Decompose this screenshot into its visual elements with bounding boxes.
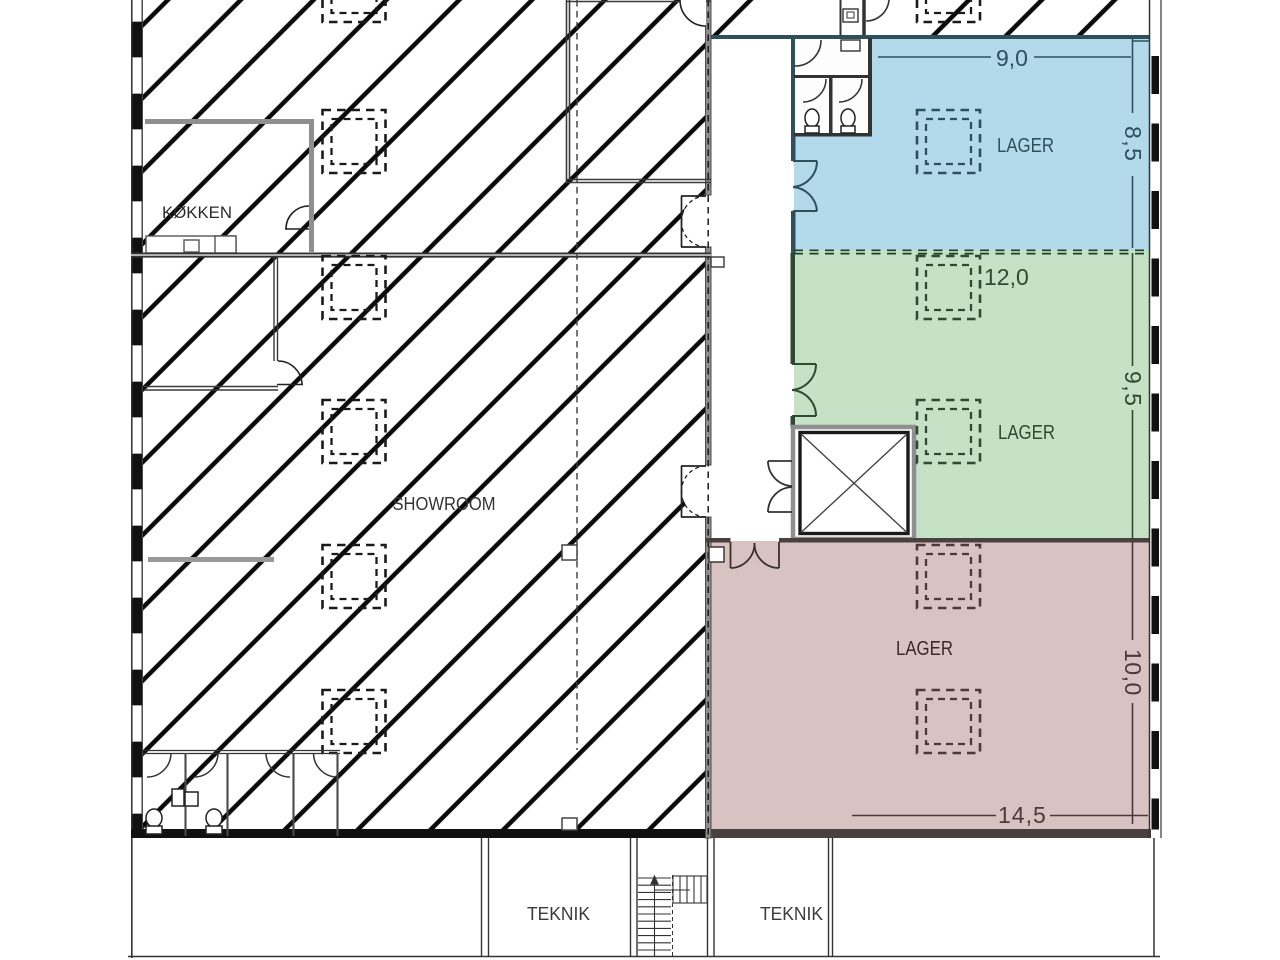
- svg-text:9,0: 9,0: [996, 45, 1028, 71]
- svg-text:LAGER: LAGER: [997, 135, 1054, 157]
- svg-text:12,0: 12,0: [984, 264, 1029, 290]
- svg-text:14,5: 14,5: [998, 802, 1047, 828]
- svg-text:KØKKEN: KØKKEN: [162, 203, 232, 222]
- svg-text:TEKNIK: TEKNIK: [527, 904, 590, 924]
- svg-text:LAGER: LAGER: [998, 422, 1055, 444]
- svg-text:9,5: 9,5: [1120, 371, 1146, 407]
- svg-text:TEKNIK: TEKNIK: [760, 904, 823, 924]
- svg-text:LAGER: LAGER: [896, 638, 953, 660]
- svg-text:10,0: 10,0: [1120, 649, 1146, 696]
- svg-text:SHOWROOM: SHOWROOM: [393, 494, 496, 514]
- svg-text:8,5: 8,5: [1120, 126, 1146, 162]
